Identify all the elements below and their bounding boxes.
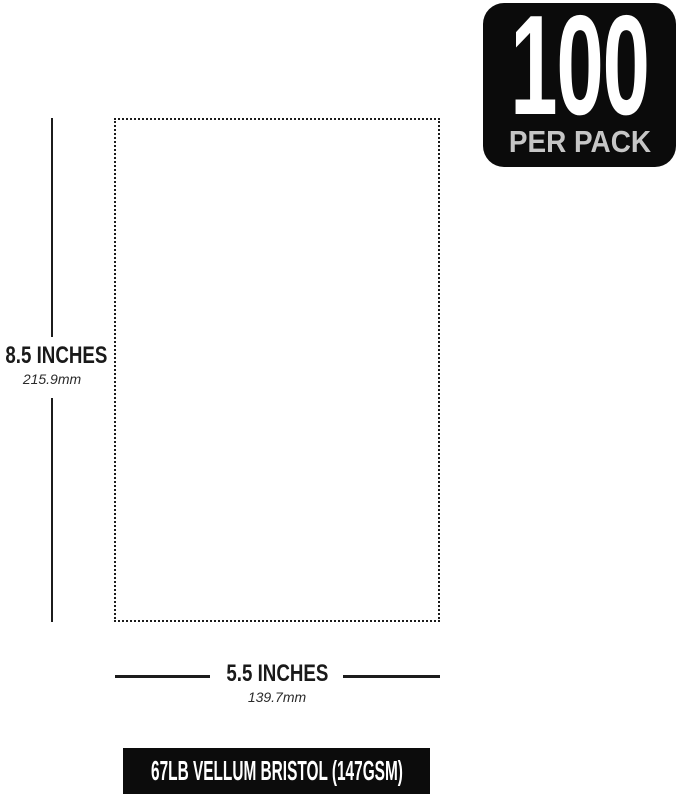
paper-type-label: 67LB VELLUM BRISTOL (147GSM) [151,757,403,785]
height-dimension-label: 8.5 INCHES 215.9mm [0,343,113,386]
pack-count: 100 [510,13,649,120]
pack-count-label: PER PACK [508,126,650,157]
width-inches-value: 5.5 INCHES [226,661,328,687]
height-dimension-line-bottom [51,398,53,622]
height-mm-value: 215.9mm [0,372,113,386]
product-dimension-image: 100 PER PACK 8.5 INCHES 215.9mm 5.5 INCH… [0,0,679,801]
width-dimension-label: 5.5 INCHES 139.7mm [177,661,377,704]
paper-sheet-outline [114,118,440,622]
width-mm-value: 139.7mm [177,690,377,704]
paper-type-banner: 67LB VELLUM BRISTOL (147GSM) [123,748,430,794]
per-pack-badge: 100 PER PACK [483,3,676,167]
height-inches-value: 8.5 INCHES [5,343,107,369]
height-dimension-line-top [51,118,53,337]
